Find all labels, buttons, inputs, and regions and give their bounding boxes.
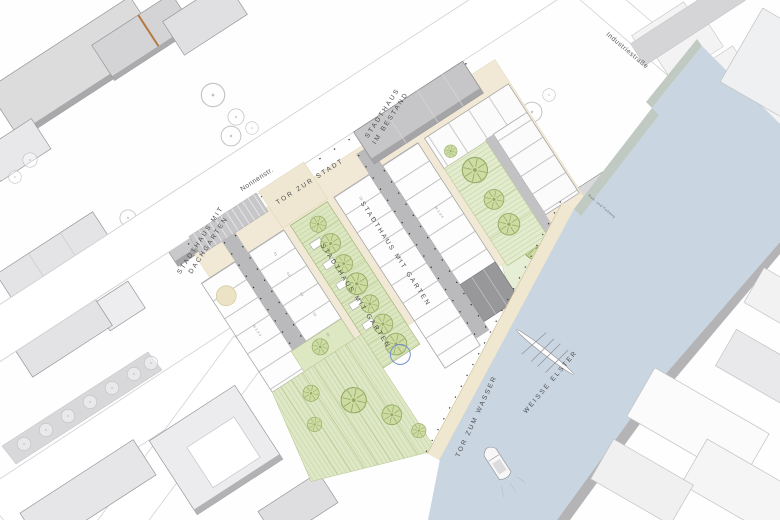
site-plan-page: 01 02 03 04 05 06 07 08 09 W 2,3-4 W 2,3…	[0, 0, 780, 520]
site-plan-canvas: 01 02 03 04 05 06 07 08 09 W 2,3-4 W 2,3…	[0, 0, 780, 520]
